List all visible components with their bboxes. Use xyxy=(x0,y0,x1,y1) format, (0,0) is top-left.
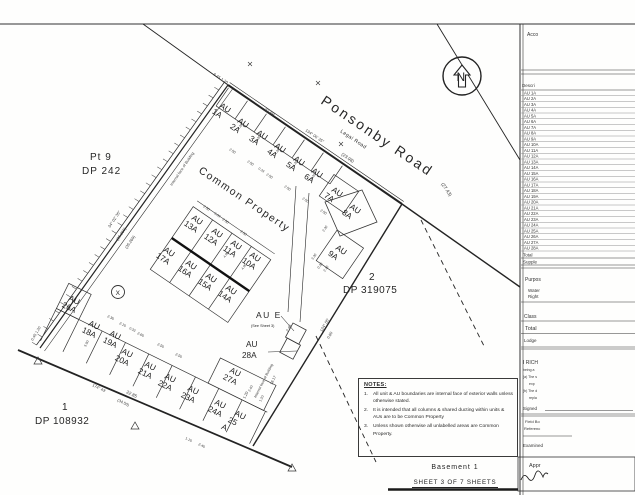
northeast-diagonal-boundary xyxy=(437,24,520,160)
dimension-label: 2.50 xyxy=(265,173,273,180)
map-label: Ponsonby Road xyxy=(318,92,436,179)
boundary-hatch-tick xyxy=(123,215,128,218)
map-label: X xyxy=(116,290,121,297)
sidebar-row-label: AU 9A xyxy=(524,136,536,141)
boundary-hatch-tick xyxy=(186,127,191,130)
sidebar-row-label: AU 16A xyxy=(524,177,539,182)
unit-label-15A: AU15A xyxy=(196,270,219,293)
sidebar-label: Referenc xyxy=(524,426,540,431)
dimension-label: 2.40 xyxy=(247,385,254,393)
dimension-label: (34.50) xyxy=(117,397,131,407)
sidebar-label: Class xyxy=(524,314,537,320)
sidebar-row-label: AU 13A xyxy=(524,159,539,164)
dimension-label: 2.10 xyxy=(119,321,127,328)
sidebar-label: Supple xyxy=(523,260,538,265)
dimension-label: 2.50 xyxy=(319,209,327,216)
sidebar-row-label: AU 8A xyxy=(524,131,536,136)
unit-label-19A: AU19A xyxy=(101,327,122,350)
sidebar-row-label: AU 27A xyxy=(524,240,539,245)
boundary-hatch-tick xyxy=(38,334,43,337)
sidebar-row-label: AU 22A xyxy=(524,211,539,216)
map-label: 28A xyxy=(242,351,257,360)
sidebar-label: being a xyxy=(523,368,535,372)
sidebar-row-label: AU 21A xyxy=(524,205,539,210)
note-item: 1.All unit & AU boundaries are internal … xyxy=(364,391,513,405)
boundary-hatch-tick xyxy=(129,207,134,210)
sidebar-row-label: AU 1A xyxy=(524,90,536,95)
map-label: AU E xyxy=(256,310,282,320)
sheet-footer-title: Basement 1 xyxy=(392,464,518,471)
boundary-hatch-tick xyxy=(157,167,162,170)
notes-list: 1.All unit & AU boundaries are internal … xyxy=(364,391,513,438)
boundary-hatch-tick xyxy=(163,159,168,162)
unit-label-25A: AU25A xyxy=(220,406,248,438)
sidebar-label: Right xyxy=(528,294,539,299)
boundary-hatch-tick xyxy=(78,278,83,281)
sidebar-row-label: AU 11A xyxy=(524,148,538,153)
sidebar-label: Total xyxy=(523,253,533,258)
note-item-number: 1. xyxy=(364,391,370,405)
unit-label-16A: AU16A xyxy=(176,257,199,280)
map-label: 2 xyxy=(369,272,375,283)
dimension-label: 2.30 xyxy=(107,314,115,321)
map-label: DP 108932 xyxy=(35,416,89,427)
note-item-number: 3. xyxy=(364,423,370,437)
sidebar-row-label: AU 28A xyxy=(524,246,539,251)
unit-label-18A: AU18A xyxy=(80,317,101,340)
dimension-label: Internal face of Building xyxy=(170,151,196,186)
sidebar-label: (a) The s xyxy=(523,375,537,379)
map-label: N xyxy=(457,70,466,84)
notes-title: NOTES: xyxy=(364,382,513,388)
unit-label-22A: AU22A xyxy=(156,370,177,393)
dimension-label: 0.20 xyxy=(317,262,324,270)
dimension-label: 2.30 xyxy=(322,225,329,233)
boundary-hatch-tick xyxy=(112,231,117,234)
dimension-label: 6.45 1.20 xyxy=(212,72,229,86)
boundary-hatch-tick xyxy=(95,254,100,257)
note-item-text: All unit & AU boundaries are internal fa… xyxy=(373,391,513,405)
unit-label-21A: AU21A xyxy=(136,358,157,381)
dimension-label: 0.33 xyxy=(129,326,137,333)
boundary-hatch-tick xyxy=(214,87,219,90)
note-item-text: It is intended that all columns & shared… xyxy=(373,407,513,421)
sidebar-row-label: AU 5A xyxy=(524,113,536,118)
road-boundary-extension-south xyxy=(402,204,520,287)
unit-label-8A: AU8A xyxy=(340,201,362,224)
boundary-hatch-tick xyxy=(55,310,60,313)
unit-label-23A: AU23A xyxy=(179,382,200,405)
dimension-label: 0.60 xyxy=(326,331,333,339)
map-label: DP 319075 xyxy=(343,285,397,296)
unit-label-4A: AU4A xyxy=(265,140,287,163)
survey-plan-canvas: Ponsonby RoadLegal RoadPt 9DP 2422DP 319… xyxy=(0,0,635,495)
unit-label-9A: AU9A xyxy=(326,242,348,265)
au-28a-unit-outline xyxy=(280,338,301,359)
map-label: Pt 9 xyxy=(90,152,112,163)
sidebar-label: exp xyxy=(529,382,535,386)
dimension-label: (35.269) xyxy=(124,234,137,250)
boundary-hatch-tick xyxy=(83,271,88,274)
note-item: 2.It is intended that all columns & shar… xyxy=(364,407,513,421)
sheet-footer-number: SHEET 3 OF 7 SHEETS xyxy=(412,479,499,488)
au-e-28a-units xyxy=(278,323,308,359)
generated-labels: Ponsonby RoadLegal RoadPt 9DP 2422DP 319… xyxy=(30,32,635,469)
dimension-label: 3.30 xyxy=(311,253,318,261)
unit-label-2A: AU2A xyxy=(228,115,250,138)
map-label: 1 xyxy=(62,402,68,413)
note-item-number: 2. xyxy=(364,407,370,421)
notes-box: NOTES: 1.All unit & AU boundaries are in… xyxy=(358,378,518,457)
sidebar-row-label: AU 3A xyxy=(524,102,536,107)
boundary-hatch-tick xyxy=(118,223,123,226)
unit-label-14A: AU14A xyxy=(216,282,239,305)
sheet-footer: Basement 1 SHEET 3 OF 7 SHEETS xyxy=(392,464,518,489)
boundary-hatch-tick xyxy=(192,119,197,122)
sidebar-row-label: AU 25A xyxy=(524,228,539,233)
map-label: Common Property xyxy=(196,165,292,235)
survey-triangle-mark xyxy=(131,422,139,429)
unit-label-12A: AU12A xyxy=(202,225,225,248)
dimension-label: 2.50 xyxy=(283,185,291,192)
boundary-hatch-tick xyxy=(100,247,105,250)
sidebar-label: I RICH xyxy=(523,360,538,366)
dimension-label: 2.50 xyxy=(228,148,236,155)
dimension-label: 0.33 xyxy=(213,212,221,219)
unit-label-5A: AU5A xyxy=(284,153,306,176)
dimension-label: (23.98) xyxy=(340,152,355,164)
dimension-label: 0.45 1.20 xyxy=(30,326,41,342)
sidebar-row-label: AU 15A xyxy=(524,171,539,176)
dimension-label: 18.17 xyxy=(269,375,277,385)
boundary-hatch-tick xyxy=(146,183,151,186)
dimension-label: (35.269) xyxy=(115,226,128,242)
boundary-hatch-tick xyxy=(174,143,179,146)
dimension-label: 1.10 xyxy=(185,436,193,443)
unit-label-1A: AU1A xyxy=(210,100,232,123)
dimension-label: 1.20 xyxy=(258,395,265,403)
sidebar-label: Lodge xyxy=(524,338,537,343)
sidebar-label: Purpos xyxy=(525,277,541,283)
note-item: 3.Unless shown otherwise all unlabelled … xyxy=(364,423,513,437)
unit-label-20A: AU20A xyxy=(113,345,134,368)
dimension-label: 2.50 xyxy=(175,352,183,359)
boundary-hatch-tick xyxy=(203,103,208,106)
dimension-label: 2.40 xyxy=(198,442,206,449)
unit-label-13A: AU13A xyxy=(182,212,205,235)
map-label: (See Sheet 3) xyxy=(251,324,275,328)
unit-label-17A: AU17A xyxy=(154,244,177,267)
boundary-hatch-tick xyxy=(89,263,94,266)
dimension-label: 5.90 xyxy=(83,340,90,348)
sidebar-row-label: AU 23A xyxy=(524,217,539,222)
sidebar-label: Descri xyxy=(522,83,535,88)
sidebar-row-label: AU 7A xyxy=(524,125,536,130)
dimension-label: 174° 43' xyxy=(92,382,108,393)
note-item-text: Unless shown otherwise all unlabelled ar… xyxy=(373,423,513,437)
sidebar-row-label: AU 4A xyxy=(524,108,536,113)
dimension-label: 2.60 xyxy=(137,331,145,338)
boundary-hatch-tick xyxy=(140,191,145,194)
sidebar-row-label: AU 14A xyxy=(524,165,539,170)
map-label: DP 242 xyxy=(82,166,121,177)
dimension-label: 2.50 xyxy=(157,342,165,349)
sidebar-label: Field Bo xyxy=(525,419,540,424)
dimension-label: 2.50 xyxy=(221,218,229,225)
sidebar-label: Signed xyxy=(523,406,538,411)
dimension-label: 2.50 xyxy=(239,230,247,237)
boundary-hatch-tick xyxy=(169,151,174,154)
sidebar-label: repla xyxy=(529,396,537,400)
dimension-label: 2.50 xyxy=(202,205,210,212)
map-label: AU xyxy=(246,340,257,349)
sidebar-row-label: AU 18A xyxy=(524,188,539,193)
sidebar-label: Examined xyxy=(523,443,544,448)
sidebar-row-label: AU 2A xyxy=(524,96,536,101)
dimension-label: (27.43) xyxy=(439,182,453,198)
sidebar-label: Total xyxy=(525,326,537,332)
sidebar-row-label: AU 6A xyxy=(524,119,536,124)
common-property-corridor-lines xyxy=(288,186,309,322)
boundary-hatch-tick xyxy=(197,111,202,114)
unit-label-6A: AU6A xyxy=(302,165,324,188)
unit-label-24A: AU24A xyxy=(206,396,227,419)
boundary-hatch-tick xyxy=(209,95,214,98)
boundary-hatch-tick xyxy=(106,239,111,242)
boundary-hatch-tick xyxy=(180,135,185,138)
sidebar-row-label: AU 26A xyxy=(524,234,539,239)
sidebar-row-label: AU 19A xyxy=(524,194,539,199)
sidebar-label: Water xyxy=(528,288,540,293)
survey-plan-sheet: Ponsonby RoadLegal RoadPt 9DP 2422DP 319… xyxy=(0,0,635,495)
approval-signature-scribble xyxy=(521,471,548,480)
sheet-frame xyxy=(0,24,635,495)
dimension-label: 0.33 xyxy=(257,167,265,174)
dimension-label: 1.20 xyxy=(242,391,249,399)
boundary-hatch-tick xyxy=(32,342,37,345)
boundary-hatch-tick xyxy=(152,175,157,178)
sidebar-label: (b) The d xyxy=(523,389,537,393)
sidebar-label: Appr xyxy=(529,463,541,469)
sidebar-row-label: AU 24A xyxy=(524,223,539,228)
sidebar-row-label: AU 20A xyxy=(524,200,539,205)
boundary-hatch-tick xyxy=(135,199,140,202)
sidebar-label: Acco xyxy=(527,32,538,38)
sidebar-row-label: AU 17A xyxy=(524,182,539,187)
sidebar-row-label: AU 10A xyxy=(524,142,539,147)
dimension-label: 34° 02' 35" xyxy=(107,209,122,228)
dimension-label: 2.50 xyxy=(246,160,254,167)
sidebar-row-label: AU 12A xyxy=(524,154,539,159)
